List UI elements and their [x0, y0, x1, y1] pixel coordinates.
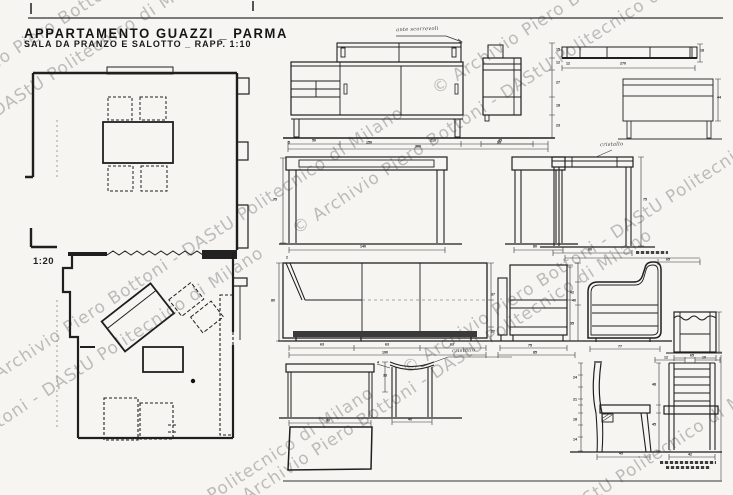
dimension-label: 21: [573, 398, 577, 402]
dimension-label: 35: [570, 322, 574, 326]
dimension-label: 210: [430, 139, 436, 143]
dimension-label: 42: [688, 453, 692, 457]
dimension-label: 12: [556, 61, 560, 65]
plan-lamp-dot: [191, 379, 195, 383]
dimension-label: 33: [383, 374, 387, 378]
dimension-label: 12: [664, 356, 668, 360]
wall-block: [202, 250, 237, 259]
glass-table-note: cristallo: [600, 141, 623, 148]
dimension-label: 77: [618, 345, 622, 349]
sofa-front-elevation: [276, 263, 672, 358]
dimension-label: 4: [377, 361, 379, 365]
dimension-label: 90: [326, 419, 330, 423]
dimension-label: 40: [572, 299, 576, 303]
dimension-label: 15: [556, 48, 560, 52]
chair-back-view: [655, 357, 720, 460]
dimension-label: 90: [497, 141, 501, 145]
dimension-label: 50: [312, 139, 316, 143]
dimension-label: 63: [450, 343, 454, 347]
dimension-label: 27: [556, 81, 560, 85]
title-line2: SALA DA PRANZO E SALOTTO _ RAPP. 1:10: [24, 39, 252, 49]
dimension-label: 75: [528, 344, 532, 348]
dimension-label: 270: [620, 62, 626, 66]
drawing-sheet: © Archivio Piero Bottoni - DAStU Politec…: [0, 0, 733, 495]
dimension-label: 27: [491, 330, 495, 334]
dining-room-plan: [25, 67, 249, 250]
dimension-label: 63: [320, 343, 324, 347]
curtain-zigzag: [107, 251, 203, 255]
dimension-label: 65: [666, 258, 670, 262]
dimension-label: 2: [286, 256, 288, 260]
dimension-label: 37: [491, 293, 495, 297]
vertical-dim-chain: [656, 363, 661, 451]
dimension-label: 44: [717, 96, 721, 100]
dimension-label: 85: [533, 351, 537, 355]
dining-table-side: [505, 157, 578, 253]
archive-stamp: [660, 461, 716, 474]
low-table-plan: [288, 427, 372, 470]
stool-note: cristallo: [452, 347, 475, 354]
vertical-dim-chain: [549, 43, 555, 138]
stamp-line: [660, 461, 716, 464]
annotation-leaders: [396, 36, 462, 43]
dimension-label: 42: [570, 291, 574, 295]
console-elevation: [618, 79, 722, 139]
dimension-label: 80: [533, 245, 537, 249]
dimension-label: 190: [382, 351, 388, 355]
plan-dining-table: [103, 122, 173, 163]
dimension-label: 14: [573, 438, 577, 442]
caption-smudge: [636, 251, 668, 254]
dimension-label: 10: [702, 356, 706, 360]
note-leader: [421, 357, 512, 367]
plan-sofa: [102, 283, 174, 351]
caption-line: [565, 255, 700, 261]
note-leader: [596, 150, 612, 157]
linework-layer: [0, 0, 733, 495]
stamp-line: [666, 466, 710, 469]
dimension-label: 63: [385, 343, 389, 347]
dimension-label: 45: [652, 423, 656, 427]
plan-scale-label: 1:20: [33, 256, 54, 267]
dimension-label: 65: [690, 354, 694, 358]
dimension-label: 300: [415, 145, 421, 149]
dimension-label: 80: [588, 248, 592, 252]
armchair-side-profile: [575, 259, 700, 352]
dimension-label: 23: [556, 124, 560, 128]
dimension-label: 150: [366, 141, 372, 145]
dimension-label: 80: [271, 299, 275, 303]
dimension-label: 18: [573, 418, 577, 422]
dimension-label: 48: [652, 383, 656, 387]
dimension-label: 75: [643, 198, 647, 202]
dimension-label: 140: [360, 245, 366, 249]
sofa-base: [293, 331, 477, 337]
dimension-label: 45: [619, 452, 623, 456]
dimension-label: 18: [700, 49, 704, 53]
dimension-label: 5: [288, 141, 290, 145]
living-room-plan: [57, 250, 247, 440]
plan-coffee-table: [143, 347, 183, 372]
wall-shelf-elevation: [562, 44, 703, 71]
low-table-front: [279, 364, 462, 426]
plan-armchairs: [169, 283, 224, 333]
vertical-dim-chain: [578, 363, 583, 451]
plan-dining-chairs: [108, 97, 167, 191]
dimension-label: 75: [273, 198, 277, 202]
dimension-label: 18: [556, 104, 560, 108]
cabinet-section: [481, 43, 555, 147]
dimension-label: 12: [566, 62, 570, 66]
dimension-label: 40: [408, 418, 412, 422]
sofa-side-section: [498, 265, 575, 358]
dining-table-front: [279, 157, 462, 253]
stool-side: [377, 357, 512, 425]
dimension-label: 24: [573, 376, 577, 380]
